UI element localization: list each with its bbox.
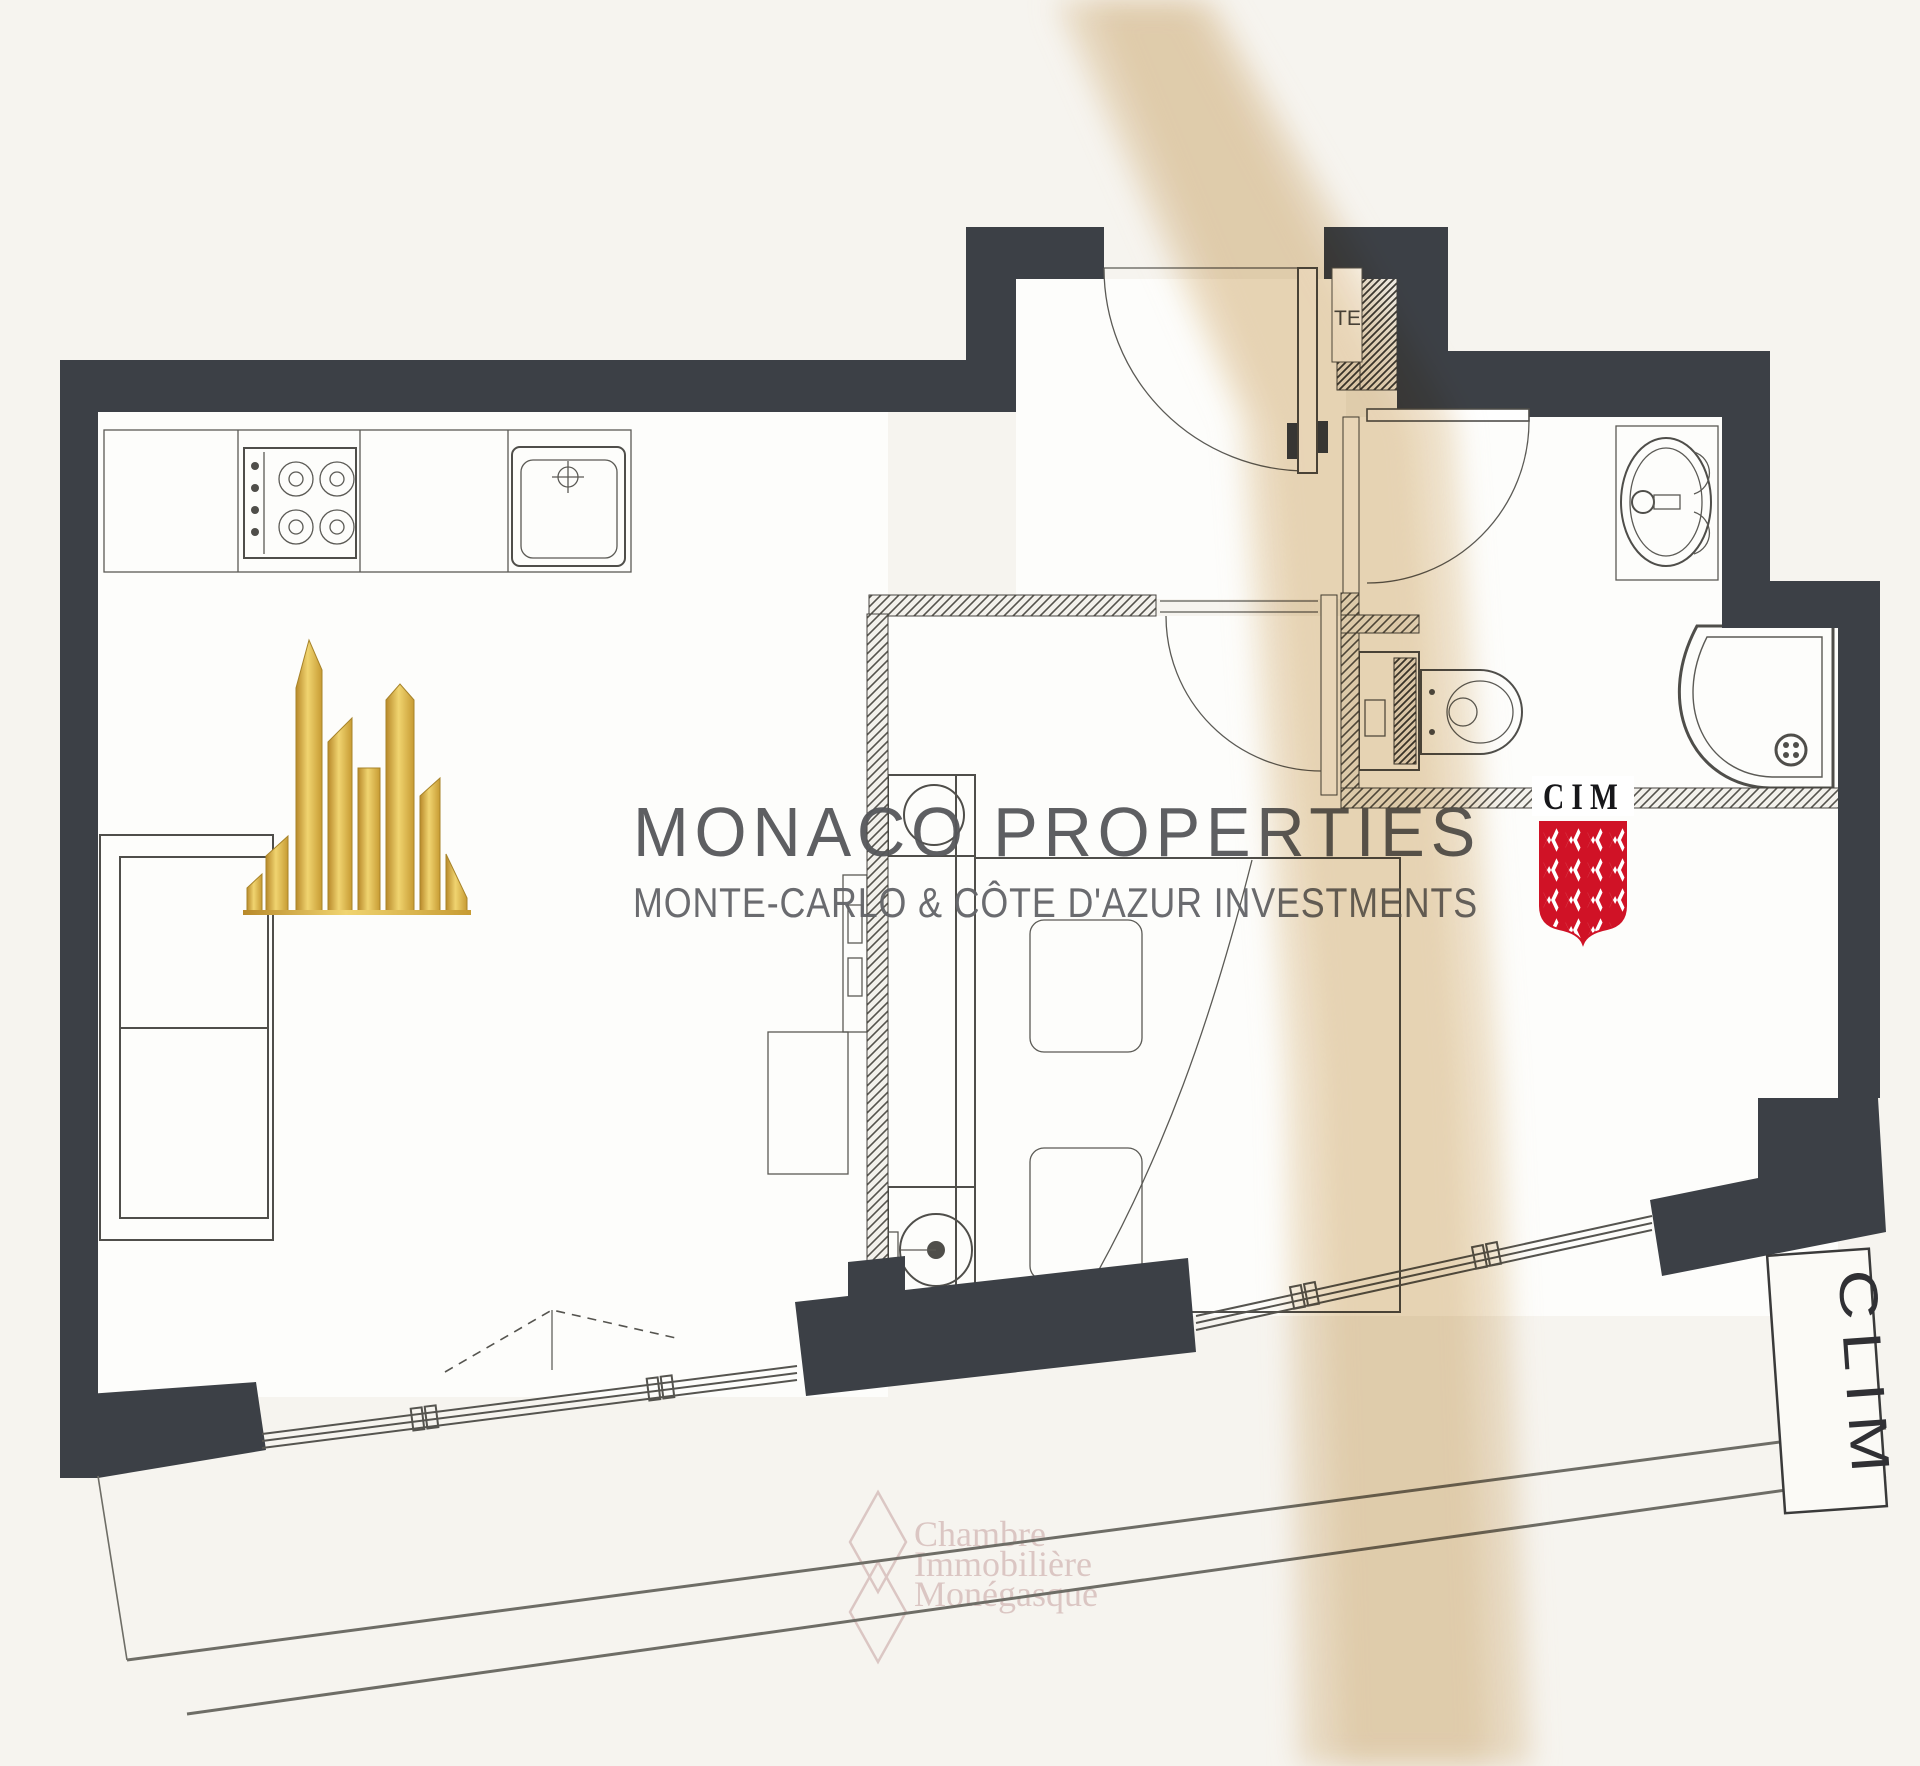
right-wall-upper (1722, 351, 1770, 581)
floor-plan-scan: Chambre Immobilière Monégasque (0, 0, 1920, 1766)
right-wall-lower (1838, 628, 1880, 1098)
cim-shield-icon (1540, 822, 1626, 946)
clim-unit: CLIM (1767, 1248, 1903, 1514)
floor-plan-svg: Chambre Immobilière Monégasque (0, 0, 1920, 1766)
cim-label: CIM (1543, 777, 1625, 818)
cim-stamp: CIM (1532, 776, 1634, 946)
bedroom-top-wall (869, 595, 1156, 616)
bedroom-left-wall (867, 614, 888, 1300)
left-wall (60, 360, 98, 1478)
right-wall-step (1722, 581, 1880, 628)
